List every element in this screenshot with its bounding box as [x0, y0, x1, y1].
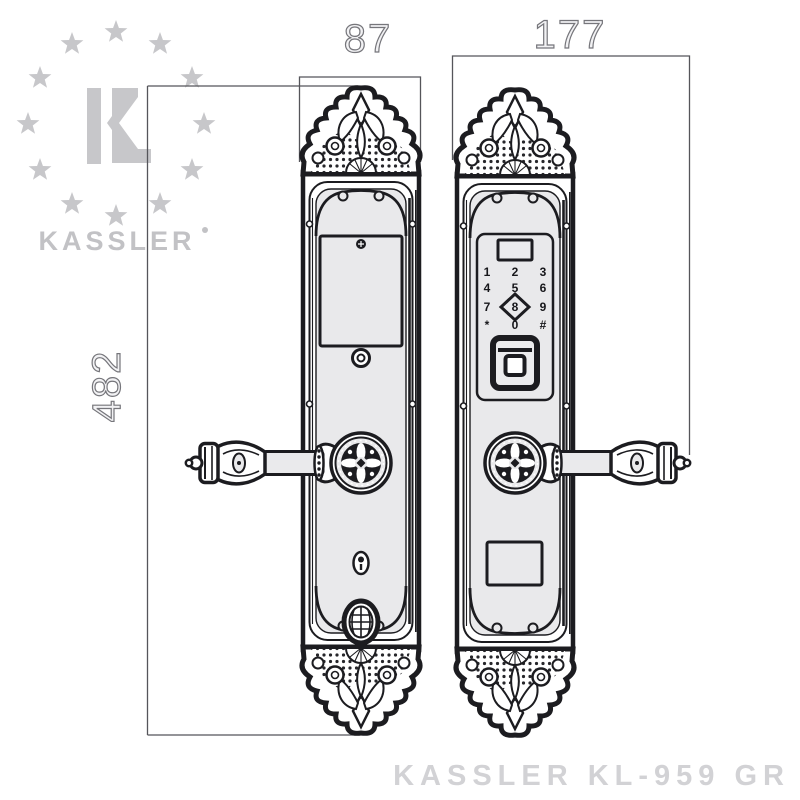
star-icon [193, 112, 216, 134]
keypad-key-4: 4 [484, 281, 491, 295]
star-icon [181, 66, 204, 88]
keypad-key-3: 3 [540, 265, 547, 279]
kassler-logo: KASSLER [17, 20, 216, 256]
keypad-key-5: 5 [512, 281, 519, 295]
dimension-height-label: 482 [85, 350, 129, 423]
key-cylinder-cover [487, 542, 542, 585]
screw-icon [356, 239, 366, 249]
keypad-key-star: * [485, 318, 490, 332]
star-icon [61, 192, 84, 214]
lock-exterior-view: 1 2 3 4 5 6 7 8 9 * 0 # [456, 90, 690, 736]
display-window [498, 240, 532, 260]
keypad-key-2: 2 [512, 265, 519, 279]
interior-handle-assembly [186, 433, 391, 493]
star-icon [105, 204, 128, 226]
star-icon [149, 192, 172, 214]
keypad-key-1: 1 [484, 265, 491, 279]
model-label: KASSLER KL-959 GR [393, 760, 790, 793]
star-icon [149, 32, 172, 54]
cylinder-screw-icon [353, 350, 370, 367]
exterior-handle-assembly [485, 433, 690, 493]
star-icon [105, 20, 128, 42]
keypad-key-0: 0 [512, 318, 519, 332]
trademark-dot-icon [202, 227, 208, 233]
dimension-plate-width-label: 87 [344, 17, 393, 61]
star-icon [29, 158, 52, 180]
star-icon [29, 66, 52, 88]
exterior-rosette [485, 433, 545, 493]
exterior-plate-body [456, 90, 574, 736]
star-icon [181, 158, 204, 180]
fingerprint-scanner [493, 338, 537, 388]
kassler-wordmark: KASSLER [38, 226, 195, 256]
lock-technical-drawing: KASSLER 482 87 177 [0, 0, 800, 800]
keypad-key-8: 8 [512, 300, 519, 314]
keypad-key-9: 9 [540, 300, 547, 314]
kassler-monogram-icon [87, 88, 151, 164]
star-icon [17, 112, 40, 134]
keypad-key-hash: # [540, 318, 547, 332]
keypad-key-6: 6 [540, 281, 547, 295]
key-cover-oval [344, 601, 378, 643]
star-icon [61, 32, 84, 54]
thumbturn [354, 552, 369, 574]
dimension-total-width-label: 177 [534, 13, 607, 57]
lock-interior-view [186, 88, 420, 734]
keypad-key-7: 7 [484, 300, 491, 314]
technical-drawing-page: KASSLER 482 87 177 [0, 0, 800, 800]
interior-rosette [331, 433, 391, 493]
battery-cover [320, 236, 402, 346]
